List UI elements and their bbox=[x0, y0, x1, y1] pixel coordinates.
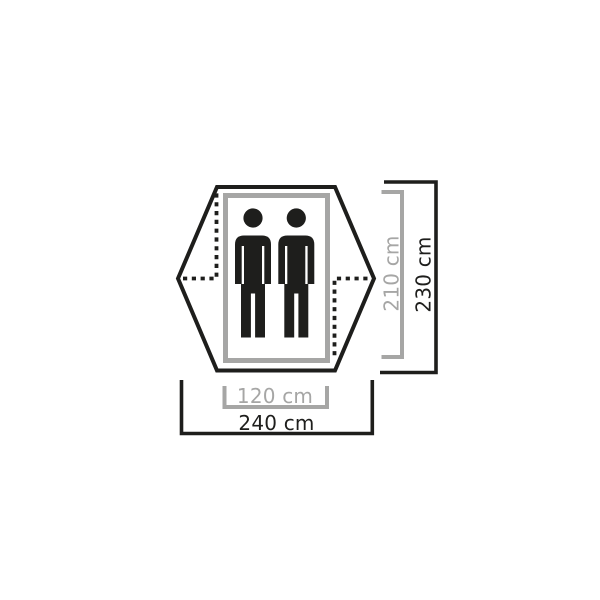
person-icon bbox=[235, 208, 271, 338]
inner-length-dimension-label: 210 cm bbox=[380, 235, 404, 311]
tent-outer-footprint-outline bbox=[178, 187, 374, 371]
tent-floorplan-diagram: 120 cm 240 cm 210 cm 230 cm bbox=[0, 0, 600, 600]
inner-width-dimension-label: 120 cm bbox=[237, 384, 313, 408]
right-vestibule-dotted-boundary bbox=[335, 279, 368, 359]
outer-width-dimension-label: 240 cm bbox=[238, 411, 314, 435]
outer-length-dimension-label: 230 cm bbox=[412, 236, 436, 312]
person-icon bbox=[278, 208, 314, 338]
tent-floorplan-svg: 120 cm 240 cm 210 cm 230 cm bbox=[0, 0, 600, 600]
